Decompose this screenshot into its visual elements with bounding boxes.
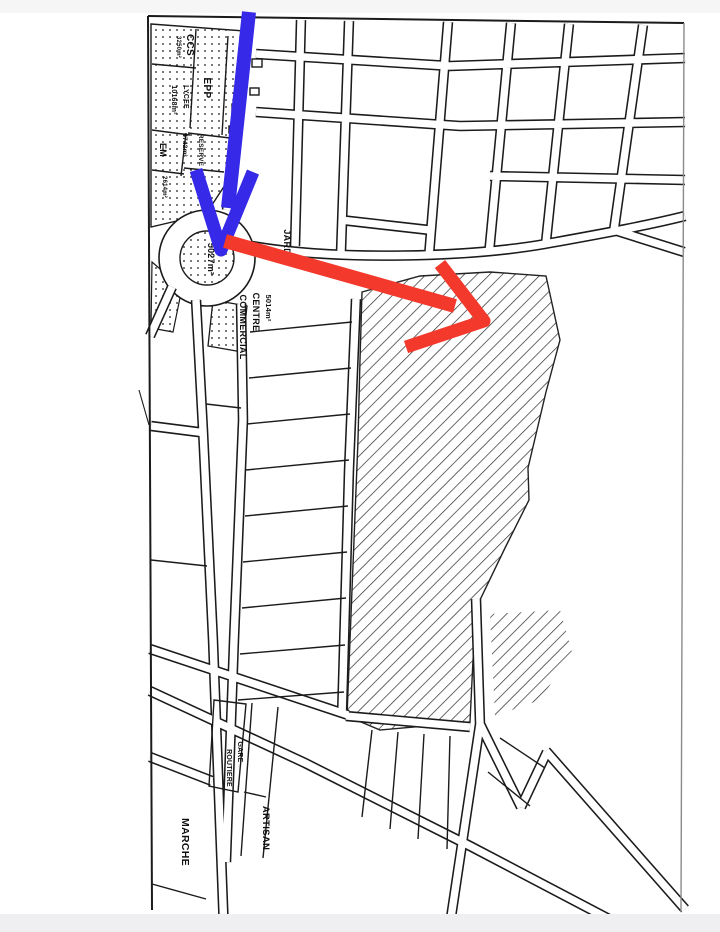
label-gare: GARE xyxy=(236,741,243,762)
label-ccs-area: 3250m² xyxy=(175,36,182,58)
scanned-site-plan: CCS 3250m² LYCEE 10168m² EPP RESERVE 474… xyxy=(0,0,720,932)
label-em-area: 2614m² xyxy=(161,176,168,198)
label-routiere: ROUTIERE xyxy=(225,749,232,787)
label-em: EM xyxy=(158,143,168,157)
page-bottom-edge xyxy=(0,914,720,932)
site-plan-image: CCS 3250m² LYCEE 10168m² EPP RESERVE 474… xyxy=(0,0,720,932)
label-lycee: LYCEE xyxy=(182,85,189,109)
label-parcel-area: 4742m² xyxy=(181,133,188,157)
label-commercial: COMMERCIAL xyxy=(238,295,248,360)
label-reserve: RESERVE xyxy=(197,134,204,167)
label-marche: MARCHE xyxy=(179,818,191,866)
label-ccs: CCS xyxy=(184,34,195,56)
label-centre: CENTRE xyxy=(251,293,261,332)
label-centre-area: 5014m² xyxy=(264,294,273,321)
page-top-edge xyxy=(0,0,720,13)
label-lycee-area: 10168m² xyxy=(170,85,177,115)
label-artisan: ARTISAN xyxy=(260,806,271,850)
label-epp: EPP xyxy=(201,78,212,99)
